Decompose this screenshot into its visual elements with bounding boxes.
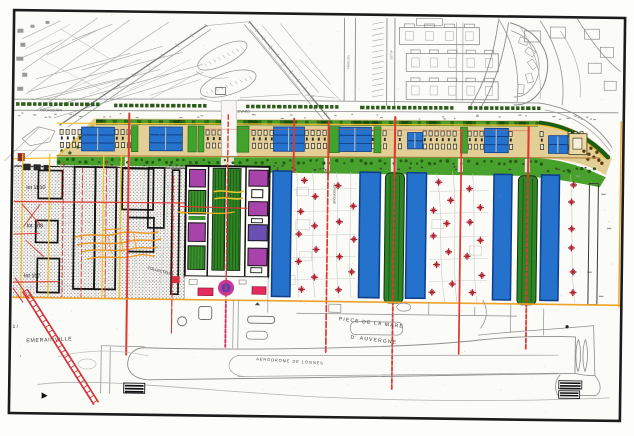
svg-text:lot 1b8: lot 1b8 (27, 223, 43, 229)
svg-text:VICTORIA: VICTORIA (346, 55, 350, 69)
svg-text:lot 1b7: lot 1b7 (24, 273, 40, 279)
svg-text:1 /: 1 / (12, 324, 18, 330)
svg-text:lot 1b10: lot 1b10 (26, 185, 45, 191)
svg-text:ALLEE: ALLEE (389, 50, 393, 59)
svg-text:COURCERIN: COURCERIN (40, 108, 62, 112)
